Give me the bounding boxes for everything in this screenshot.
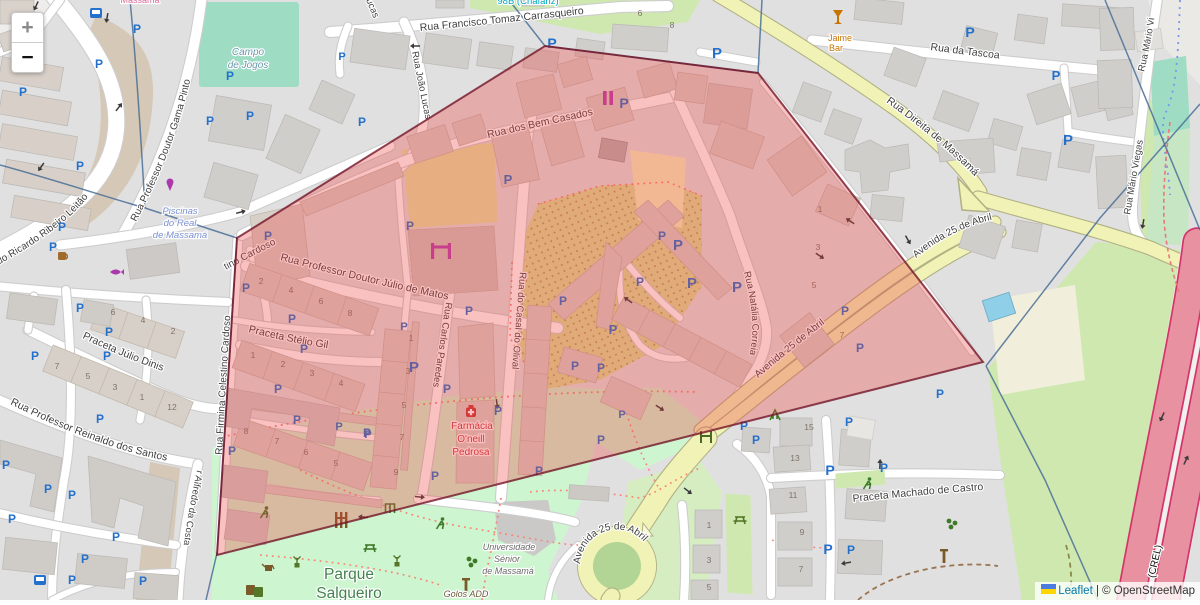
svg-text:P: P bbox=[112, 530, 120, 544]
svg-text:P: P bbox=[1052, 68, 1061, 83]
svg-text:P: P bbox=[31, 349, 39, 363]
svg-text:3: 3 bbox=[113, 382, 118, 392]
svg-text:P: P bbox=[358, 115, 366, 129]
svg-text:Universidade: Universidade bbox=[483, 542, 536, 552]
svg-text:P: P bbox=[49, 240, 57, 254]
svg-text:Jaime: Jaime bbox=[828, 33, 852, 43]
svg-text:P: P bbox=[76, 301, 84, 315]
svg-text:6: 6 bbox=[638, 8, 643, 18]
svg-text:Sénior: Sénior bbox=[494, 554, 521, 564]
svg-text:1: 1 bbox=[707, 520, 712, 530]
svg-text:P: P bbox=[823, 541, 832, 557]
svg-text:1: 1 bbox=[140, 392, 145, 402]
svg-text:P: P bbox=[2, 458, 10, 472]
svg-text:P: P bbox=[44, 482, 52, 496]
svg-text:P: P bbox=[825, 462, 834, 478]
svg-text:3: 3 bbox=[707, 555, 712, 565]
svg-text:P: P bbox=[68, 573, 76, 587]
svg-text:13: 13 bbox=[790, 453, 800, 463]
svg-text:P: P bbox=[936, 387, 944, 401]
svg-text:do Real: do Real bbox=[164, 218, 198, 229]
svg-text:P: P bbox=[226, 69, 234, 83]
svg-text:P: P bbox=[105, 325, 113, 339]
svg-text:2: 2 bbox=[171, 326, 176, 336]
svg-text:Parque: Parque bbox=[324, 566, 374, 583]
svg-text:P: P bbox=[847, 543, 855, 557]
svg-text:P: P bbox=[68, 488, 76, 502]
svg-text:de Massamá: de Massamá bbox=[482, 566, 534, 576]
svg-text:P: P bbox=[8, 512, 16, 526]
svg-text:7: 7 bbox=[55, 361, 60, 371]
svg-text:P: P bbox=[96, 412, 104, 426]
svg-text:P: P bbox=[139, 574, 147, 588]
svg-text:P: P bbox=[81, 552, 89, 566]
svg-text:8: 8 bbox=[670, 20, 675, 30]
svg-text:15: 15 bbox=[804, 422, 814, 432]
svg-text:Campo: Campo bbox=[232, 47, 265, 58]
svg-text:P: P bbox=[246, 109, 254, 123]
svg-text:Salgueiro: Salgueiro bbox=[316, 585, 382, 600]
svg-text:6: 6 bbox=[111, 307, 116, 317]
svg-text:P: P bbox=[133, 22, 141, 36]
svg-text:98B (Chafariz): 98B (Chafariz) bbox=[497, 0, 558, 7]
svg-text:P: P bbox=[19, 85, 27, 99]
svg-text:P: P bbox=[752, 433, 760, 447]
svg-text:Golos ADD: Golos ADD bbox=[444, 589, 489, 599]
svg-text:P: P bbox=[76, 159, 84, 173]
svg-text:5: 5 bbox=[707, 582, 712, 592]
svg-text:4: 4 bbox=[141, 315, 146, 325]
svg-text:Bar: Bar bbox=[829, 43, 843, 53]
svg-text:P: P bbox=[965, 24, 974, 40]
svg-text:P: P bbox=[1063, 132, 1073, 149]
svg-text:11: 11 bbox=[789, 490, 798, 500]
svg-text:P: P bbox=[95, 57, 103, 71]
svg-text:P: P bbox=[206, 114, 214, 128]
svg-text:P: P bbox=[103, 349, 111, 363]
svg-text:5: 5 bbox=[86, 371, 91, 381]
svg-text:Massamá: Massamá bbox=[120, 0, 159, 5]
svg-text:7: 7 bbox=[799, 564, 804, 574]
svg-text:12: 12 bbox=[167, 402, 177, 412]
svg-text:9: 9 bbox=[800, 527, 805, 537]
svg-text:Piscinas: Piscinas bbox=[162, 206, 198, 217]
svg-text:de Massamá: de Massamá bbox=[153, 230, 207, 241]
svg-text:P: P bbox=[845, 415, 853, 429]
svg-text:P: P bbox=[338, 51, 345, 63]
svg-text:P: P bbox=[712, 45, 722, 62]
svg-text:P: P bbox=[58, 220, 66, 234]
svg-text:P: P bbox=[880, 461, 888, 475]
